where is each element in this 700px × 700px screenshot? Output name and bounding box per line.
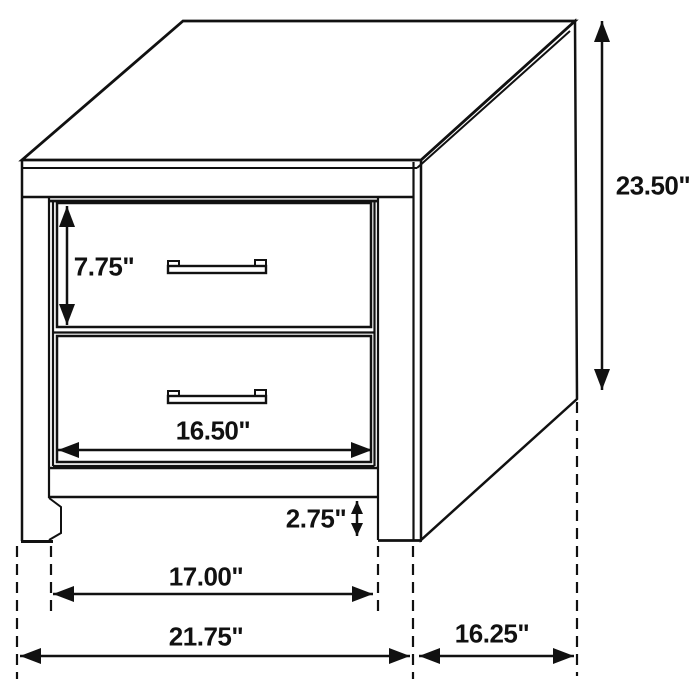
- nightstand-dimension-diagram: 23.50" 7.75" 16.50" 2.75" 17.00" 21.75" …: [0, 0, 700, 700]
- base-clearance-label: 2.75": [286, 504, 346, 535]
- overall-height-label: 23.50": [616, 171, 690, 202]
- drawer-height-label: 7.75": [74, 252, 134, 283]
- left-leg-inner-face: [49, 498, 61, 540]
- right-leg: [378, 197, 422, 541]
- drawer-width-label: 16.50": [176, 416, 250, 447]
- left-leg: [21, 160, 61, 542]
- overall-depth-label: 16.25": [455, 619, 529, 650]
- handle-bar: [168, 266, 266, 273]
- overall-width-label: 21.75": [169, 622, 243, 653]
- handle-bar: [168, 396, 266, 403]
- line-art-canvas: [0, 0, 700, 700]
- inner-leg-span-label: 17.00": [169, 562, 243, 593]
- stretcher-rail: [49, 468, 378, 497]
